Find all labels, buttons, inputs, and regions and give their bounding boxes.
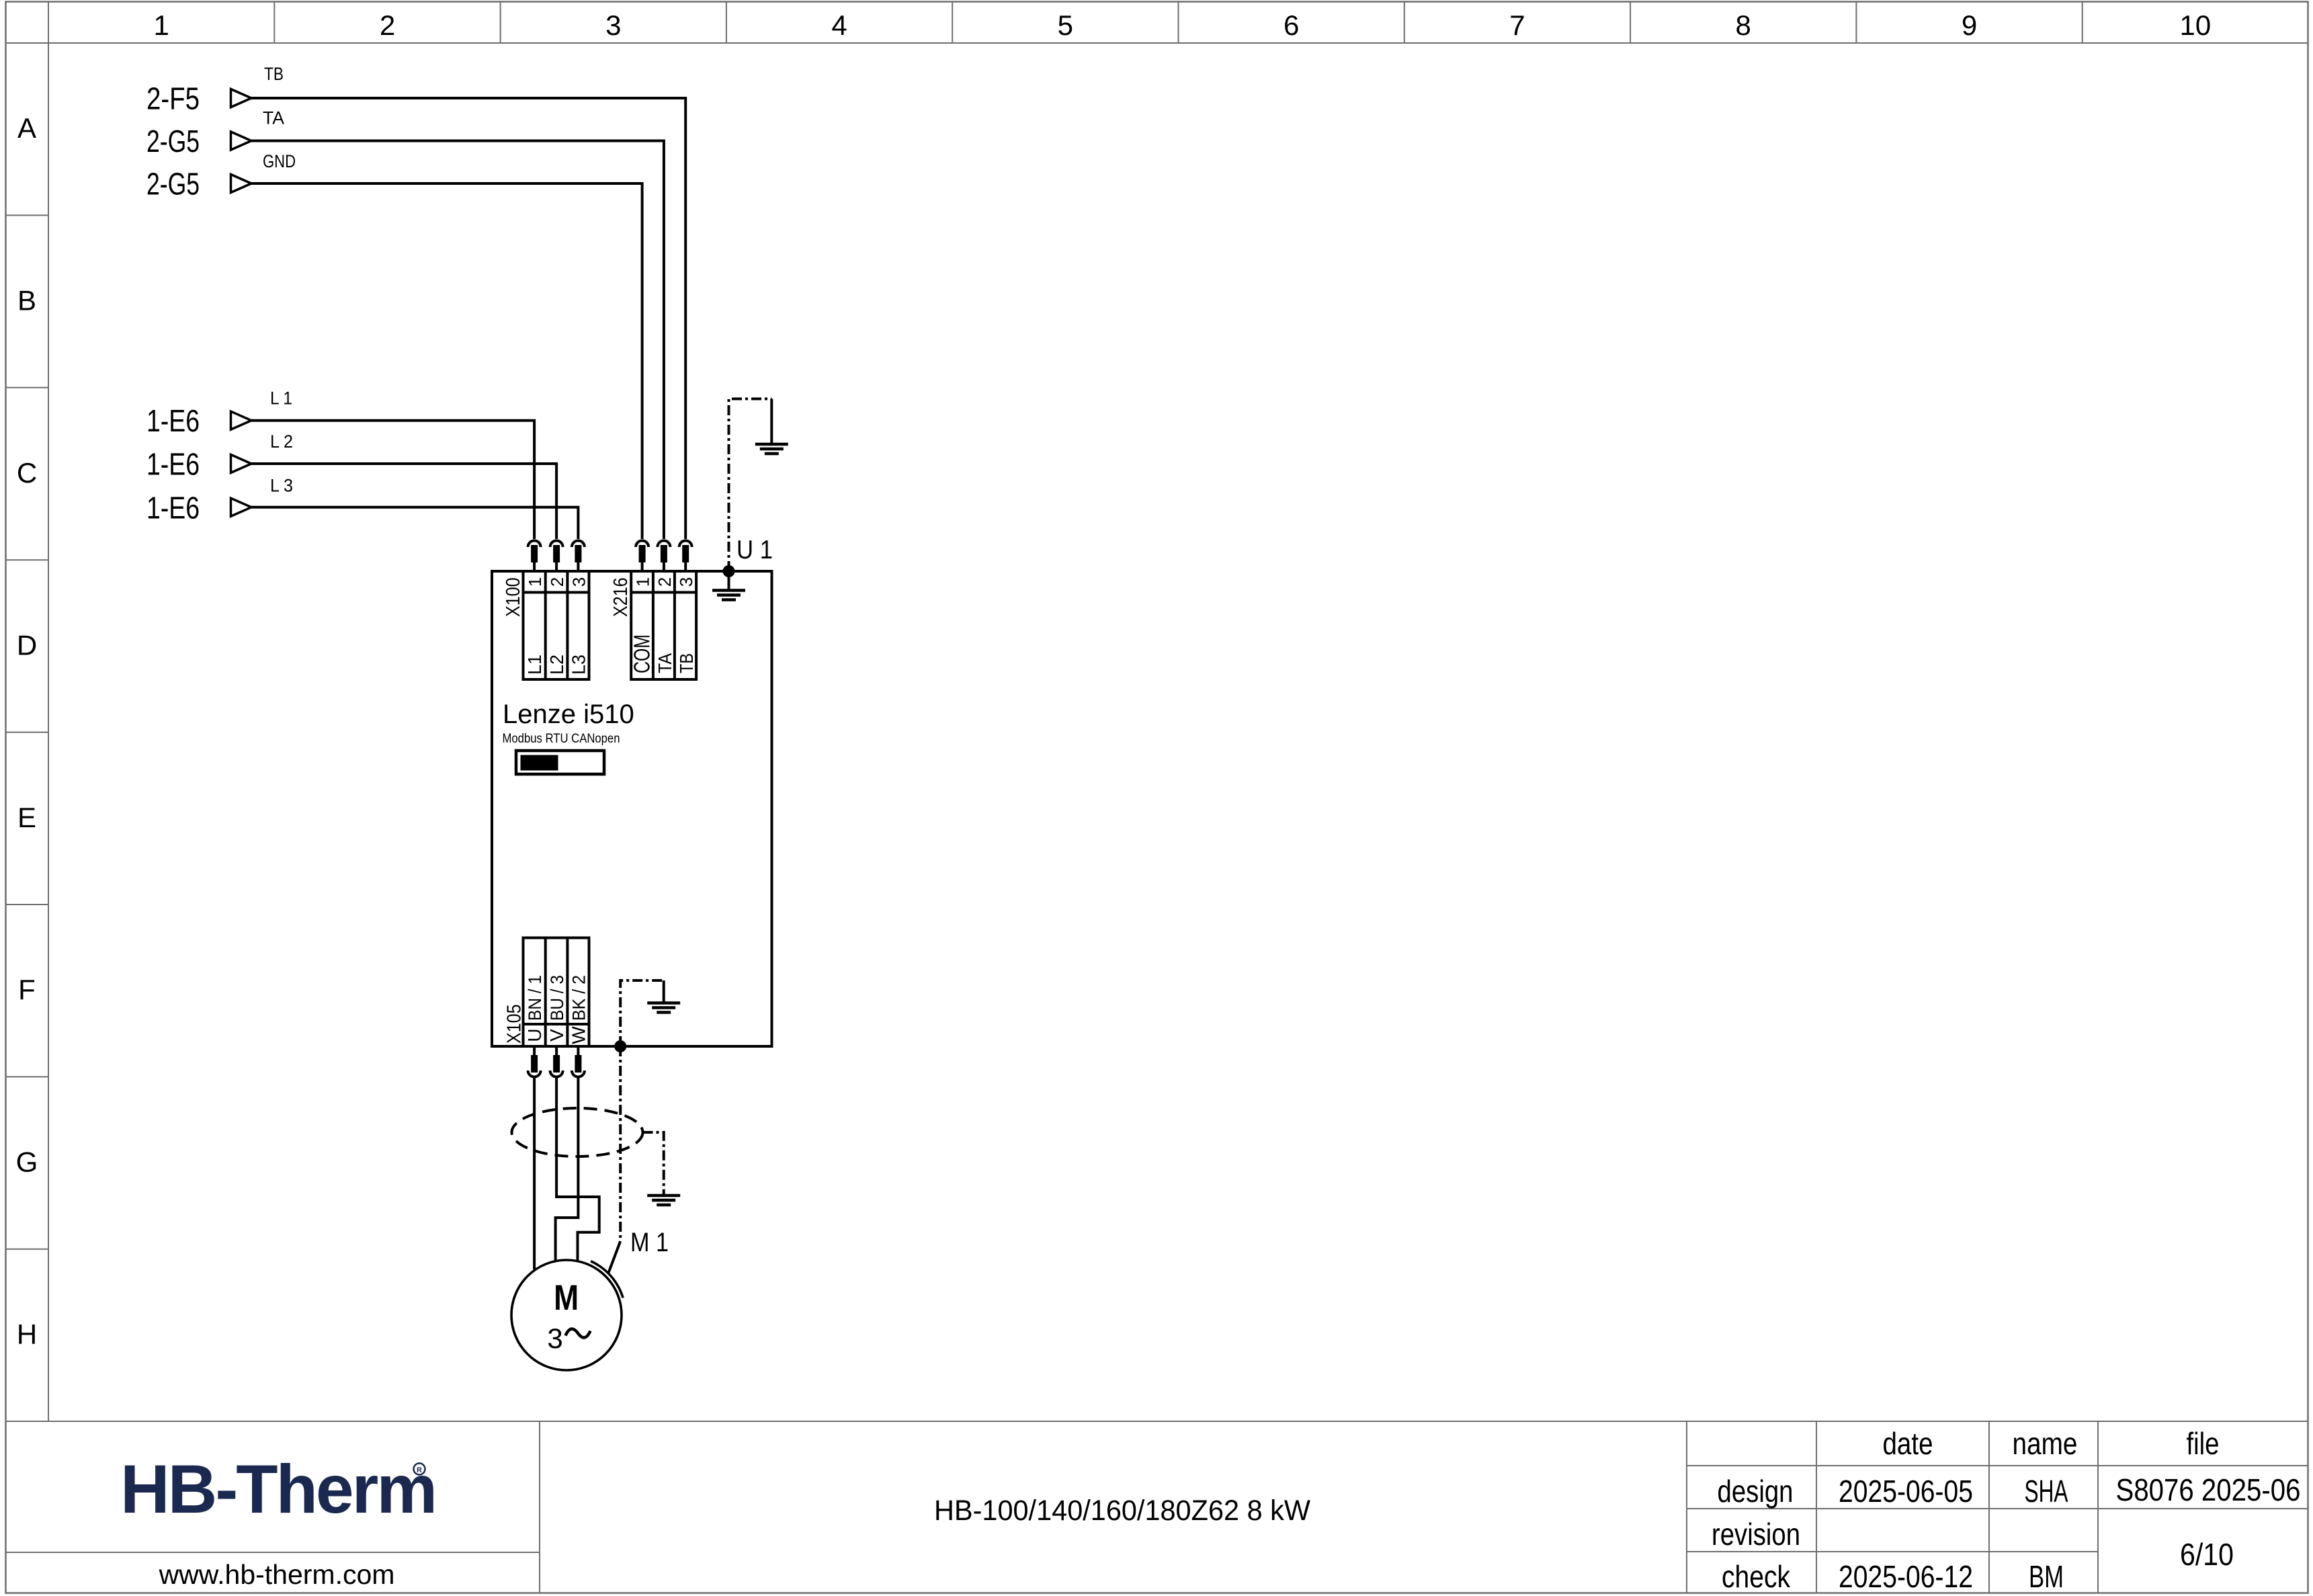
svg-text:COM: COM xyxy=(630,634,655,673)
svg-text:3: 3 xyxy=(569,577,589,587)
svg-text:6: 6 xyxy=(1284,9,1299,41)
svg-text:4: 4 xyxy=(831,9,847,41)
svg-text:C: C xyxy=(17,457,37,489)
svg-text:TA: TA xyxy=(263,108,284,128)
svg-text:2-G5: 2-G5 xyxy=(146,167,200,202)
svg-text:X100: X100 xyxy=(503,578,524,618)
svg-text:www.hb-therm.com: www.hb-therm.com xyxy=(159,1559,395,1590)
svg-text:BU / 3: BU / 3 xyxy=(547,975,567,1021)
svg-text:BN / 1: BN / 1 xyxy=(525,975,545,1021)
svg-text:BK / 2: BK / 2 xyxy=(569,975,589,1021)
svg-text:L3: L3 xyxy=(569,655,589,675)
svg-text:BM: BM xyxy=(2029,1559,2064,1594)
svg-text:L 3: L 3 xyxy=(270,476,293,496)
svg-text:L2: L2 xyxy=(546,655,567,675)
svg-text:revision: revision xyxy=(1712,1517,1800,1552)
svg-text:W: W xyxy=(569,1026,589,1044)
svg-text:TB: TB xyxy=(264,64,284,84)
svg-text:10: 10 xyxy=(2180,9,2212,41)
svg-text:date: date xyxy=(1883,1426,1933,1461)
svg-text:8: 8 xyxy=(1736,9,1751,41)
svg-text:SHA: SHA xyxy=(2025,1474,2068,1509)
svg-text:E: E xyxy=(17,802,36,833)
svg-text:2: 2 xyxy=(380,9,395,41)
svg-text:Modbus RTU CANopen: Modbus RTU CANopen xyxy=(503,731,620,746)
svg-text:5: 5 xyxy=(1058,9,1073,41)
svg-text:M 1: M 1 xyxy=(630,1228,669,1257)
svg-text:U: U xyxy=(524,1028,545,1042)
svg-text:3: 3 xyxy=(676,577,696,587)
svg-text:V: V xyxy=(546,1029,567,1042)
svg-text:TA: TA xyxy=(655,653,675,673)
svg-text:G: G xyxy=(16,1146,38,1178)
svg-text:1-E6: 1-E6 xyxy=(146,403,200,438)
svg-text:M: M xyxy=(554,1278,579,1318)
svg-text:2-F5: 2-F5 xyxy=(146,81,200,116)
svg-text:design: design xyxy=(1718,1474,1794,1509)
svg-text:Lenze i510: Lenze i510 xyxy=(503,700,634,729)
svg-text:1-E6: 1-E6 xyxy=(146,490,200,525)
svg-text:1: 1 xyxy=(633,577,653,587)
svg-text:2025-06-12: 2025-06-12 xyxy=(1839,1559,1973,1594)
svg-text:1-E6: 1-E6 xyxy=(146,447,200,482)
svg-text:D: D xyxy=(17,629,37,661)
svg-text:X216: X216 xyxy=(610,578,632,618)
svg-text:2025-06-05: 2025-06-05 xyxy=(1839,1474,1973,1509)
svg-text:1: 1 xyxy=(525,577,545,587)
svg-text:B: B xyxy=(17,285,36,317)
svg-text:9: 9 xyxy=(1962,9,1977,41)
svg-text:TB: TB xyxy=(676,653,697,673)
svg-text:F: F xyxy=(18,974,36,1005)
svg-text:name: name xyxy=(2013,1426,2078,1461)
svg-text:L1: L1 xyxy=(524,655,545,675)
svg-text:2: 2 xyxy=(547,577,567,587)
svg-text:L 2: L 2 xyxy=(270,431,293,452)
svg-text:GND: GND xyxy=(263,151,296,171)
svg-text:HB-Therm: HB-Therm xyxy=(120,1451,435,1527)
svg-text:check: check xyxy=(1722,1559,1791,1594)
svg-text:3: 3 xyxy=(547,1322,562,1354)
svg-text:L 1: L 1 xyxy=(270,388,292,409)
svg-text:X105: X105 xyxy=(504,1005,525,1044)
svg-text:3: 3 xyxy=(605,9,621,41)
svg-text:S8076 2025-06: S8076 2025-06 xyxy=(2116,1472,2301,1507)
svg-text:file: file xyxy=(2187,1426,2220,1461)
svg-text:A: A xyxy=(17,112,36,144)
svg-text:1: 1 xyxy=(154,9,169,41)
svg-text:7: 7 xyxy=(1509,9,1525,41)
svg-text:2: 2 xyxy=(655,577,675,587)
svg-text:H: H xyxy=(17,1318,37,1350)
svg-text:R: R xyxy=(417,1466,422,1474)
svg-text:6/10: 6/10 xyxy=(2180,1537,2234,1572)
svg-text:2-G5: 2-G5 xyxy=(146,124,200,159)
svg-text:HB-100/140/160/180Z62 8 kW: HB-100/140/160/180Z62 8 kW xyxy=(934,1495,1310,1527)
svg-text:U 1: U 1 xyxy=(737,536,773,564)
